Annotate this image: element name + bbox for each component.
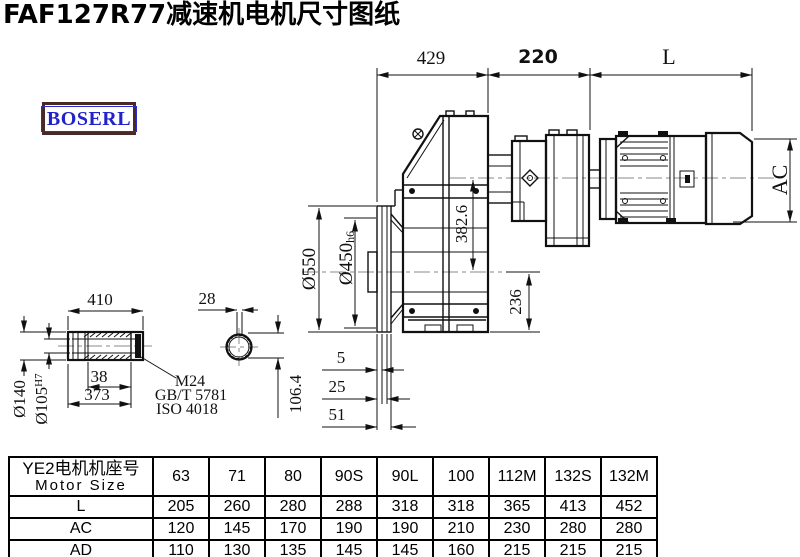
drawing-page: FAF127R77减速机电机尺寸图纸 BOSERL 429 220 L [0, 0, 800, 557]
table-cell: 318 [377, 496, 433, 518]
table-cell: 170 [265, 518, 321, 540]
input-adapter [488, 130, 589, 246]
dim-L-label: L [662, 44, 675, 69]
table-col-header: 80 [265, 457, 321, 496]
table-row: AD 110 130 135 145 145 160 215 215 215 [9, 540, 657, 557]
table-cell: 413 [545, 496, 601, 518]
ac-dim: AC [733, 139, 797, 222]
table-cell: 205 [153, 496, 209, 518]
hollow-shaft-detail: 410 Ø140 Ø105H7 38 [10, 290, 227, 425]
table-col-header: 90S [321, 457, 377, 496]
table-cell: 160 [433, 540, 489, 557]
flange-diameter-dims: Ø550 Ø450h6 [299, 206, 376, 332]
dim-429-label: 429 [417, 48, 446, 69]
dim-38-label: 38 [91, 367, 108, 386]
dim-AC-label: AC [767, 165, 792, 196]
table-cell: 280 [601, 518, 657, 540]
row-label: AD [9, 540, 153, 557]
flange-thickness-dims: 5 25 51 [322, 334, 416, 430]
table-cell: 280 [265, 496, 321, 518]
table-cell: 215 [601, 540, 657, 557]
table-cell: 145 [321, 540, 377, 557]
dim-5-label: 5 [337, 348, 346, 367]
dim-373-label: 373 [84, 385, 110, 404]
dim-106-4-label: 106.4 [286, 374, 305, 413]
table-cell: 210 [433, 518, 489, 540]
table-col-header: 90L [377, 457, 433, 496]
table-col-header: 132S [545, 457, 601, 496]
table-col-header: 63 [153, 457, 209, 496]
dim-28-label: 28 [199, 289, 216, 308]
table-cell: 452 [601, 496, 657, 518]
table-cell: 190 [321, 518, 377, 540]
table-cell: 365 [489, 496, 545, 518]
table-cell: 110 [153, 540, 209, 557]
table-col-header: 132M [601, 457, 657, 496]
table-cell: 130 [209, 540, 265, 557]
table-cell: 145 [377, 540, 433, 557]
dim-236-label: 236 [506, 289, 525, 315]
table-header-label: YE2电机机座号 Motor Size [9, 457, 153, 496]
dim-25-label: 25 [329, 377, 346, 396]
table-cell: 318 [433, 496, 489, 518]
callout-std2-label: ISO 4018 [156, 401, 218, 418]
table-header-row: YE2电机机座号 Motor Size 63 71 80 90S 90L 100… [9, 457, 657, 496]
table-row: L 205 260 280 288 318 318 365 413 452 [9, 496, 657, 518]
table-row: AC 120 145 170 190 190 210 230 280 280 [9, 518, 657, 540]
table-cell: 288 [321, 496, 377, 518]
dim-220-label: 220 [518, 46, 558, 68]
gearbox-housing [395, 111, 488, 332]
output-flange [368, 206, 403, 332]
table-cell: 120 [153, 518, 209, 540]
dim-550-label: Ø550 [299, 248, 320, 290]
table-cell: 135 [265, 540, 321, 557]
dim-382-6-label: 382.6 [452, 205, 471, 243]
dim-140-label: Ø140 [10, 380, 29, 418]
technical-drawing: 429 220 L [0, 0, 800, 455]
table-cell: 280 [545, 518, 601, 540]
dim-51-label: 51 [329, 405, 346, 424]
table-cell: 230 [489, 518, 545, 540]
table-cell: 260 [209, 496, 265, 518]
centerlines [58, 178, 775, 366]
motor-size-table: YE2电机机座号 Motor Size 63 71 80 90S 90L 100… [8, 456, 658, 557]
table-col-header: 112M [489, 457, 545, 496]
table-cell: 190 [377, 518, 433, 540]
table-cell: 145 [209, 518, 265, 540]
table-col-header: 71 [209, 457, 265, 496]
table-cell: 215 [489, 540, 545, 557]
table-col-header: 100 [433, 457, 489, 496]
dim-450h6-label: Ø450h6 [336, 231, 357, 285]
row-label: L [9, 496, 153, 518]
row-label: AC [9, 518, 153, 540]
dim-410-label: 410 [87, 290, 113, 309]
table-cell: 215 [545, 540, 601, 557]
dim-105H7-label: Ø105H7 [32, 373, 51, 425]
